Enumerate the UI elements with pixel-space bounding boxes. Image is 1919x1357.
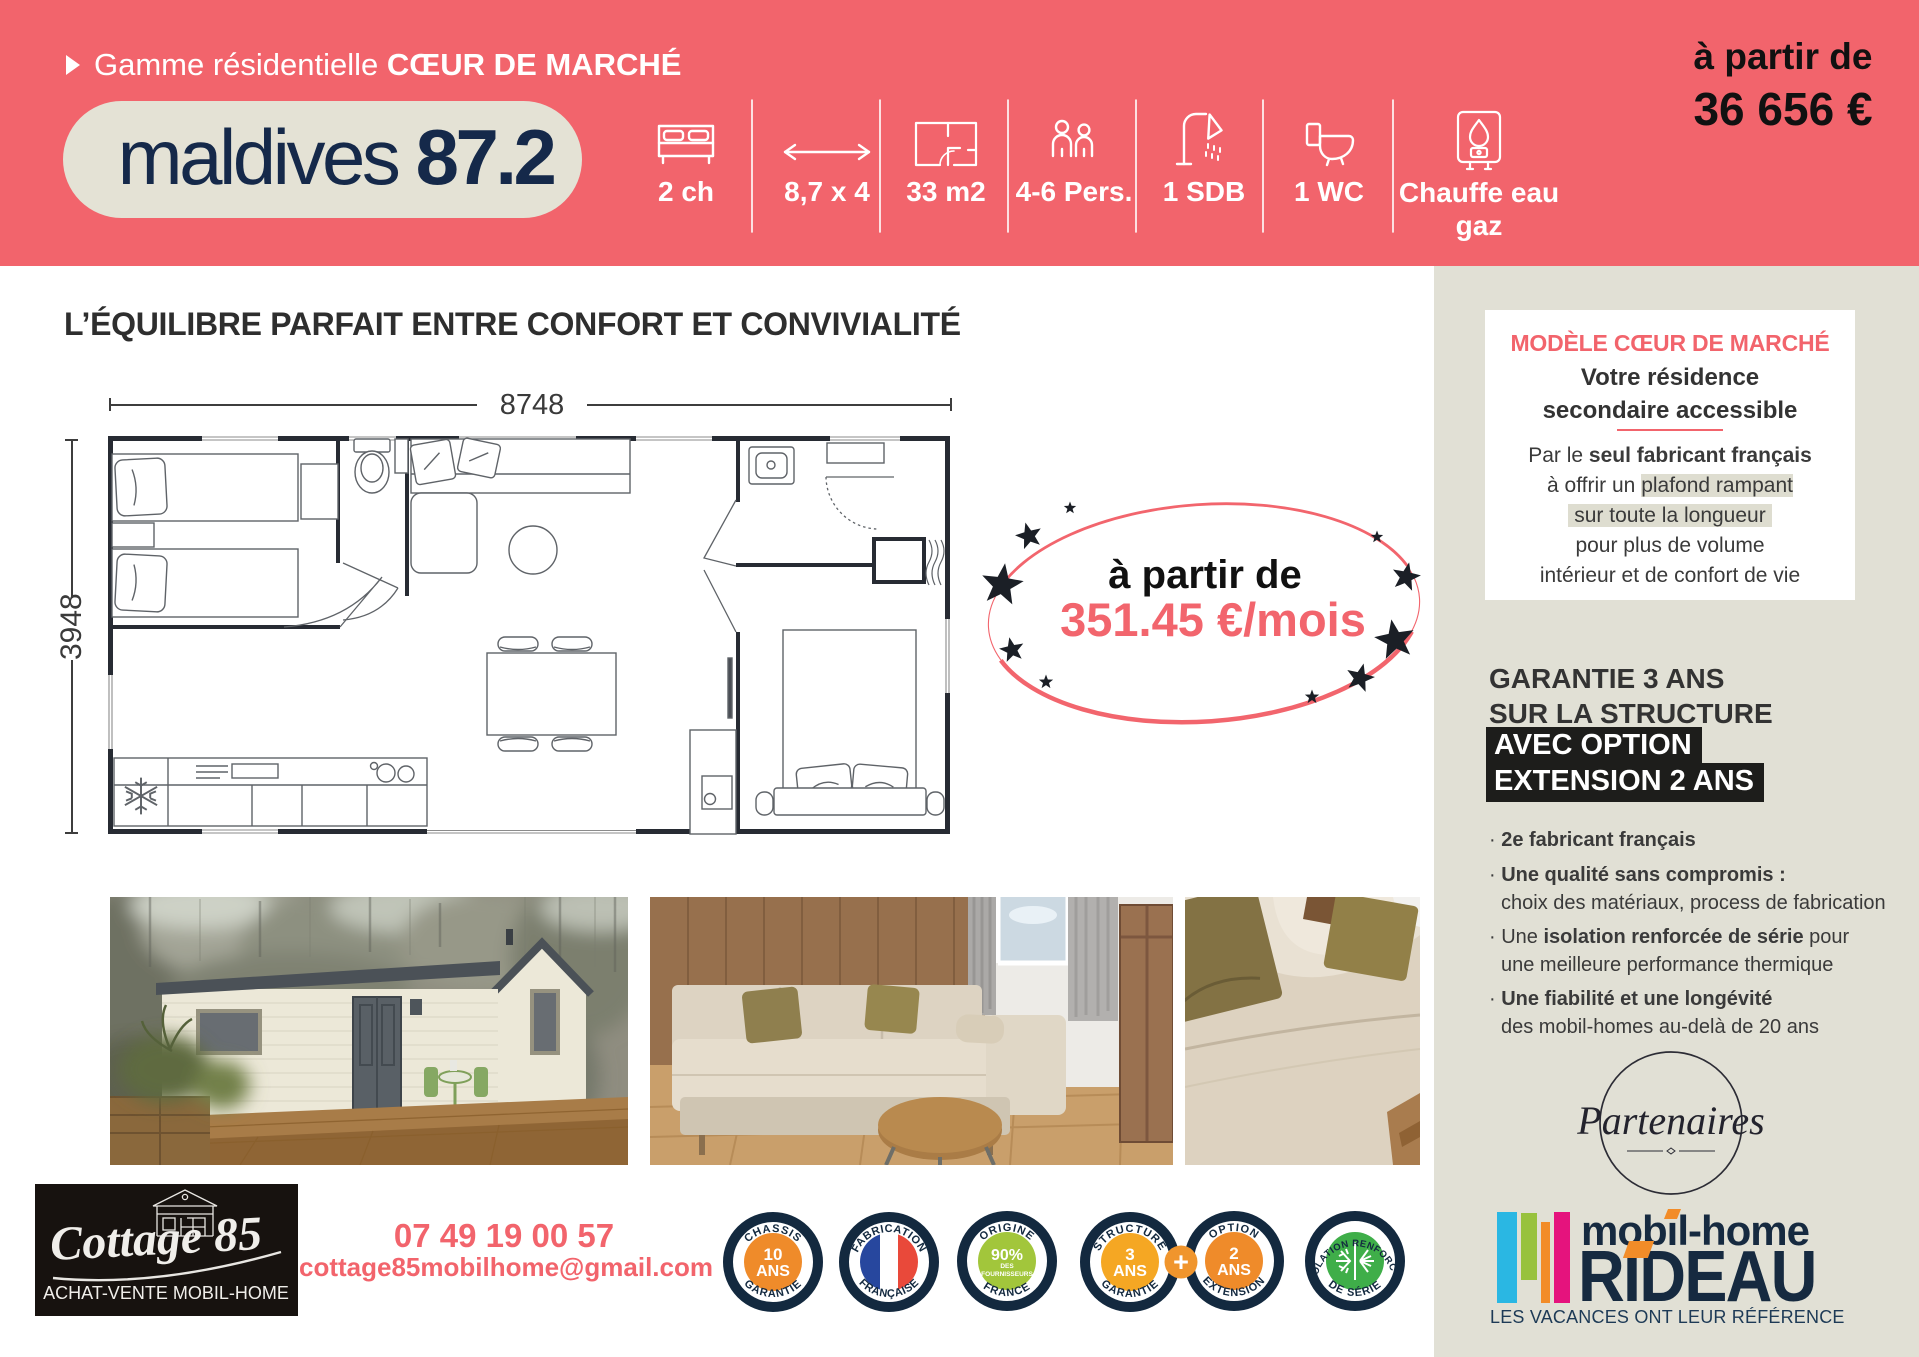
svg-text:ANS: ANS [1217,1262,1251,1279]
svg-text:ANS: ANS [1113,1263,1147,1280]
svg-text:10: 10 [764,1245,783,1264]
svg-text:3: 3 [1125,1245,1134,1264]
svg-text:FOURNISSEURS: FOURNISSEURS [981,1271,1033,1278]
svg-text:Cottage 85: Cottage 85 [49,1207,263,1271]
svg-text:ACHAT-VENTE MOBIL-HOME: ACHAT-VENTE MOBIL-HOME [43,1283,289,1303]
svg-text:Partenaires: Partenaires [1576,1098,1764,1143]
svg-text:2: 2 [1229,1244,1238,1263]
svg-text:ANS: ANS [756,1263,790,1280]
svg-text:DES: DES [1000,1263,1014,1270]
svg-text:90%: 90% [991,1247,1023,1264]
svg-text:+: + [1173,1247,1189,1277]
